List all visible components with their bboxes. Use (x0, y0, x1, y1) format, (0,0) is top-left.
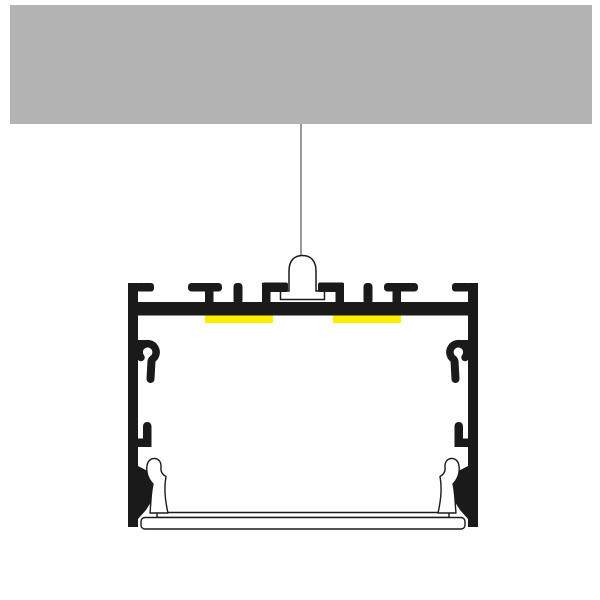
diagram-root (0, 0, 600, 600)
top-rib-left-stem (234, 283, 243, 304)
top-rib-right-stem (364, 283, 373, 304)
screw-boss-right-finger (455, 361, 456, 379)
screw-boss-left-finger (151, 361, 152, 379)
top-rib-right-arm (452, 283, 470, 292)
top-rib-right-tslot-leg (393, 288, 402, 304)
suspended-led-profile-diagram (0, 0, 600, 600)
led-strip-right (333, 316, 401, 324)
ceiling-slab (10, 5, 592, 124)
channel-leg-left (262, 283, 271, 304)
top-plate (128, 302, 478, 316)
top-rib-left-tslot-leg (205, 288, 214, 304)
top-rib-left-arm (136, 283, 154, 292)
led-strip-left (205, 316, 273, 324)
diffuser-plate (157, 513, 449, 518)
diffuser-bottom-lip (141, 518, 465, 530)
channel-leg-right (336, 283, 345, 304)
